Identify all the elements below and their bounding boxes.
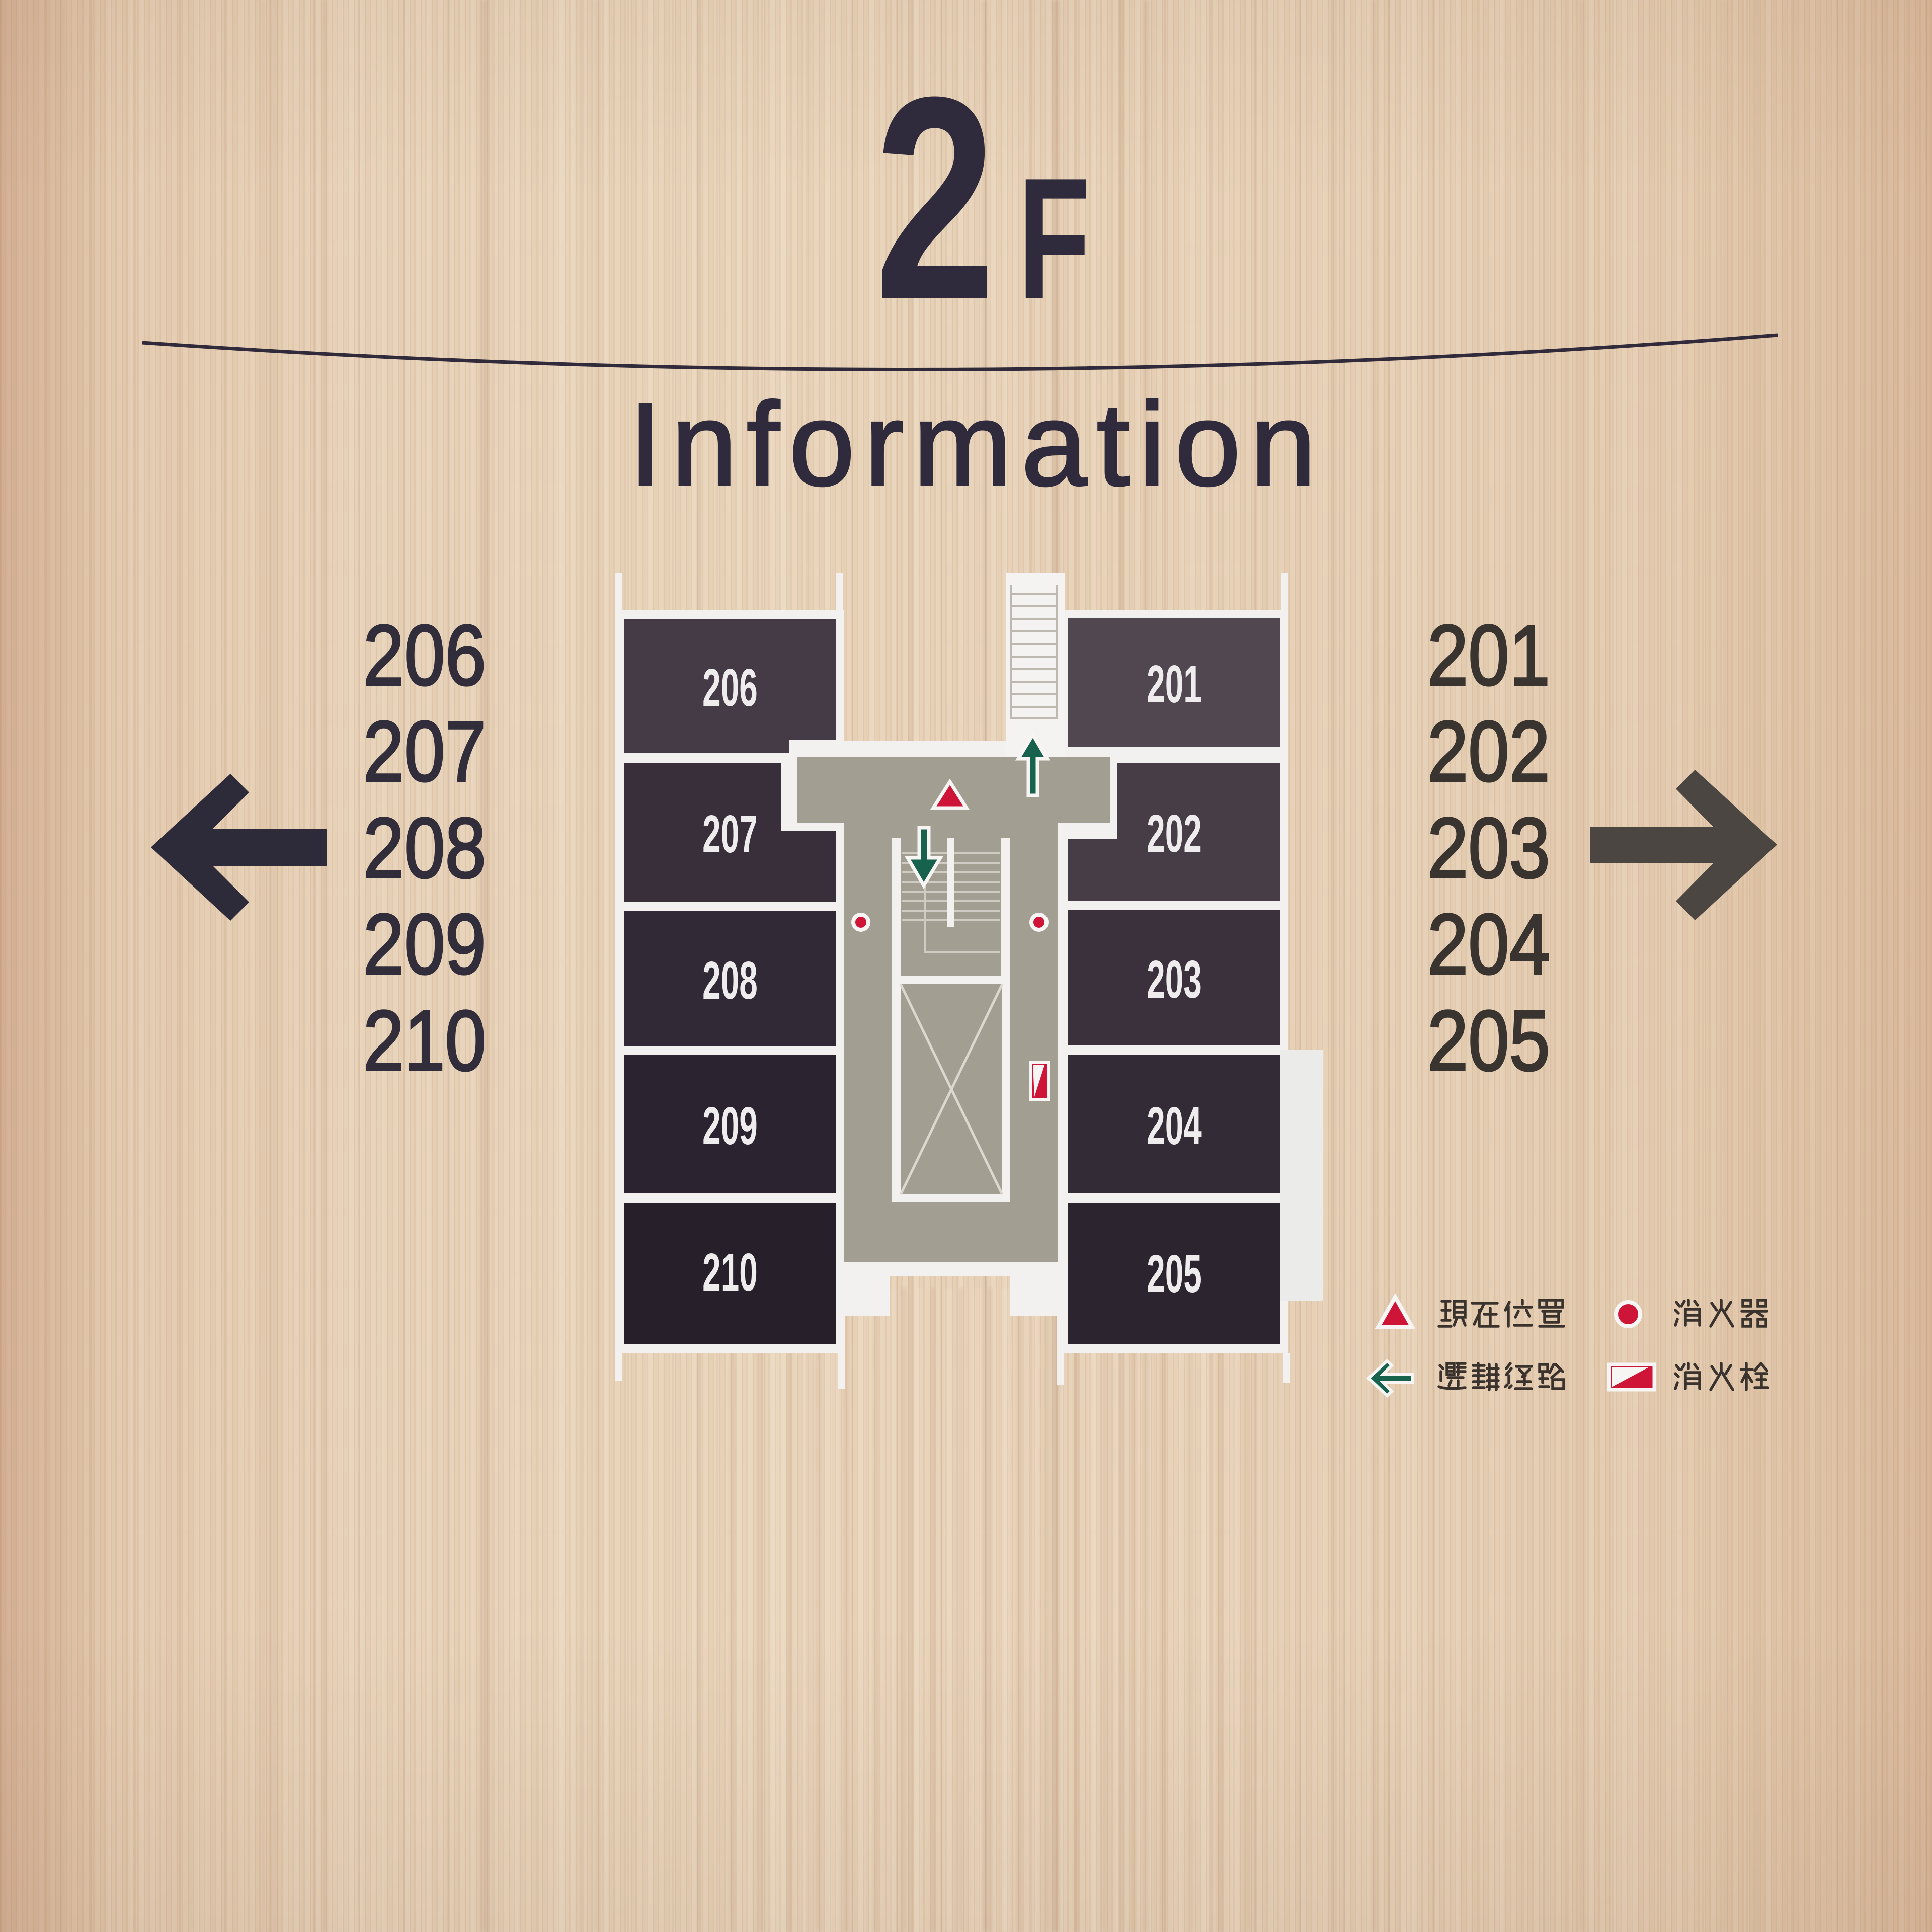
svg-text:208: 208 [702, 950, 758, 1010]
svg-text:203: 203 [1147, 949, 1202, 1009]
svg-text:209: 209 [702, 1096, 758, 1156]
svg-text:206: 206 [363, 607, 486, 703]
svg-text:Information: Information [629, 378, 1326, 510]
svg-text:210: 210 [363, 993, 486, 1089]
svg-text:208: 208 [363, 800, 486, 896]
svg-text:209: 209 [363, 896, 486, 992]
svg-text:206: 206 [702, 658, 758, 717]
svg-text:F: F [1018, 142, 1090, 336]
svg-text:202: 202 [1147, 803, 1202, 863]
svg-text:207: 207 [363, 703, 486, 799]
svg-text:204: 204 [1427, 896, 1550, 992]
svg-text:201: 201 [1147, 654, 1202, 714]
svg-text:202: 202 [1427, 703, 1550, 799]
svg-text:210: 210 [702, 1242, 758, 1302]
svg-text:2: 2 [874, 36, 996, 360]
svg-text:205: 205 [1147, 1244, 1202, 1304]
svg-text:204: 204 [1147, 1096, 1202, 1156]
svg-text:201: 201 [1427, 607, 1550, 703]
svg-text:203: 203 [1427, 800, 1550, 896]
svg-text:205: 205 [1427, 993, 1550, 1089]
svg-text:207: 207 [702, 804, 758, 864]
